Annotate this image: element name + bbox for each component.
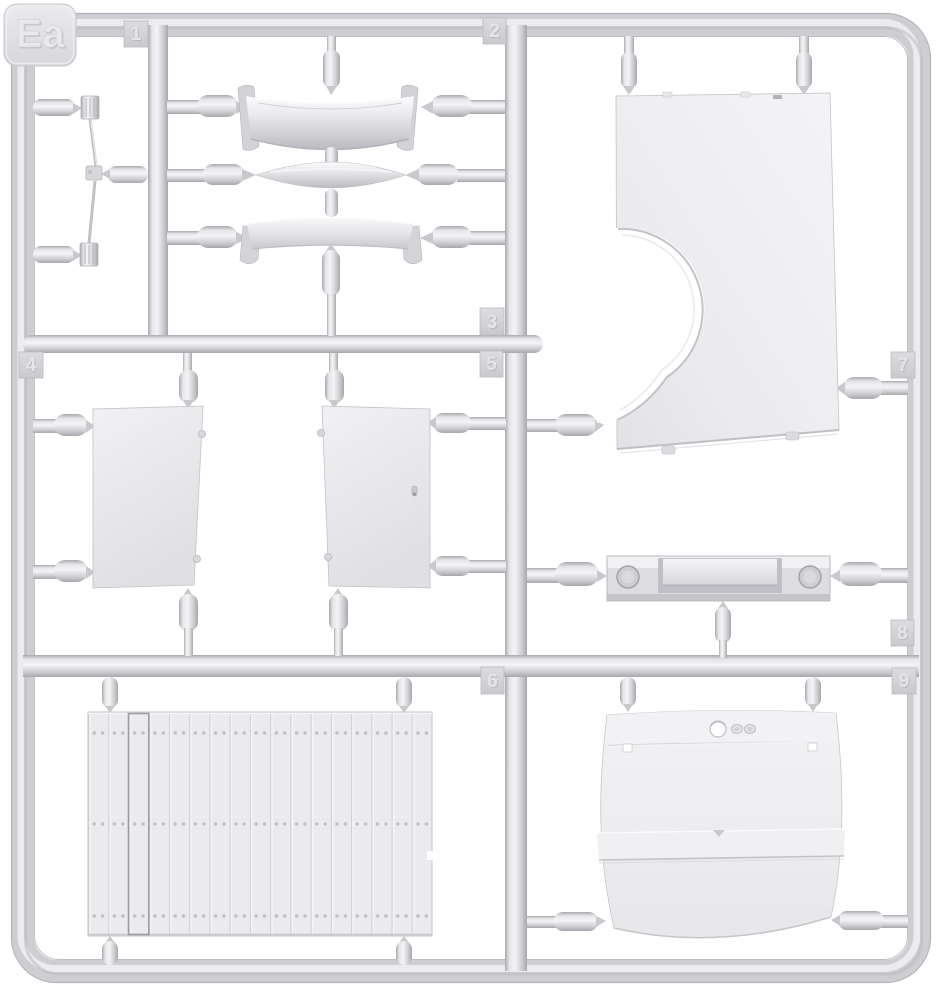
model-kit-sprue-image: Ea Ea 1 1 2 2 3 3 4 4 5 5 xyxy=(0,0,936,1000)
door-panel-left-face xyxy=(93,406,203,588)
part-9-roof-panel xyxy=(527,677,908,938)
runner-vertical-center xyxy=(505,25,527,971)
door-hinge-pin xyxy=(199,431,206,438)
svg-text:6: 6 xyxy=(487,671,498,692)
part-8-step-bracket xyxy=(527,556,908,658)
svg-text:5: 5 xyxy=(486,354,497,375)
svg-text:1: 1 xyxy=(131,24,142,45)
part-1-linkage-rod xyxy=(33,96,148,266)
part-3-fender-lower xyxy=(167,219,505,337)
part-2-fender-upper xyxy=(167,36,505,150)
part-6-plank-deck xyxy=(88,677,433,965)
door-hinge-pin xyxy=(318,430,325,437)
runner-horizontal-upper xyxy=(23,335,543,353)
part-tag-1: 1 1 xyxy=(124,21,148,47)
part-tag-3: 3 3 xyxy=(480,308,504,335)
sprue-label-plate: Ea Ea xyxy=(4,4,76,66)
panel-mount-tab xyxy=(662,446,675,454)
svg-text:8: 8 xyxy=(897,623,908,644)
svg-text:2: 2 xyxy=(489,21,500,42)
door-panel-right-face xyxy=(322,406,430,588)
part-tag-7: 7 7 xyxy=(891,352,915,378)
part-tag-8: 8 8 xyxy=(891,620,914,646)
part-spreader-bar xyxy=(167,147,505,217)
sprue-label: Ea xyxy=(16,12,66,56)
door-hinge-pin xyxy=(325,554,332,561)
door-hinge-pin xyxy=(194,556,201,563)
svg-text:7: 7 xyxy=(898,355,909,376)
svg-text:3: 3 xyxy=(487,312,498,333)
spreader-bar-body xyxy=(256,162,406,188)
svg-text:4: 4 xyxy=(26,355,37,376)
part-5-door-panel xyxy=(318,353,507,656)
part-tag-5: 5 5 xyxy=(480,351,503,377)
part-tag-9: 9 9 xyxy=(892,668,916,694)
part-tag-2: 2 2 xyxy=(483,18,506,44)
runner-horizontal-lower xyxy=(23,655,919,677)
part-tag-4: 4 4 xyxy=(19,352,43,378)
panel-mount-tab xyxy=(786,432,799,440)
part-tag-6: 6 6 xyxy=(481,667,504,694)
part-7-cab-panel xyxy=(527,36,908,454)
svg-text:9: 9 xyxy=(899,671,910,692)
part-4-door-panel xyxy=(33,353,206,656)
runner-vertical-left xyxy=(148,25,168,344)
